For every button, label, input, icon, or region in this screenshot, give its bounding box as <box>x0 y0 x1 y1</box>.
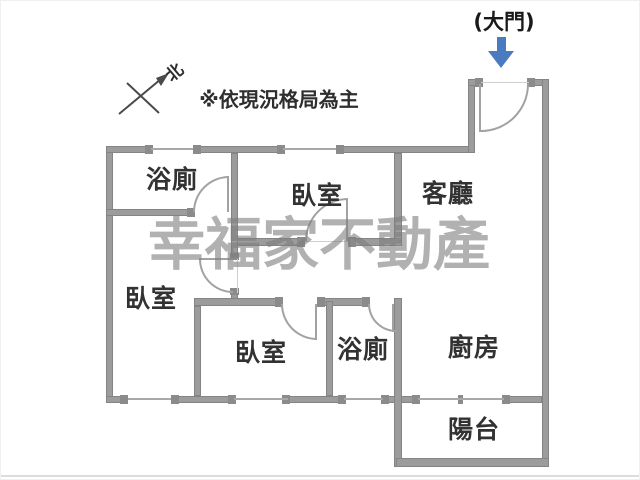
room-label: 臥室 <box>125 279 177 315</box>
wall-segment <box>396 458 549 467</box>
door-leaf <box>392 304 394 332</box>
window-line <box>344 398 383 400</box>
room-label: 廚房 <box>448 328 500 364</box>
wall-segment <box>193 146 283 153</box>
wall-segment <box>326 301 333 396</box>
wall-cap <box>120 395 128 404</box>
watermark-text: 幸福家不動產 <box>148 199 490 281</box>
window-line <box>151 148 193 150</box>
door-swing-arc <box>481 84 529 132</box>
wall-segment <box>336 146 475 153</box>
wall-segment <box>194 306 201 396</box>
floor-plan-canvas: (大門) 北 ※依現況格局為主 浴廁臥室客廳臥室臥室浴廁廚房陽台 幸福家不動產 <box>0 0 640 480</box>
entrance-arrow-head-icon <box>488 51 514 68</box>
wall-segment <box>194 298 281 306</box>
window-line <box>128 398 171 400</box>
disclaimer-text: ※依現況格局為主 <box>199 84 358 113</box>
wall-segment <box>468 79 475 153</box>
wall-segment <box>288 396 344 403</box>
wall-cap <box>171 395 179 404</box>
window-line <box>234 398 288 400</box>
room-label: 浴廁 <box>337 330 389 366</box>
door-leaf <box>315 304 317 340</box>
wall-cap <box>193 145 201 154</box>
wall-segment <box>106 146 113 403</box>
north-label: 北 <box>162 60 188 86</box>
image-bottom-edge <box>1 475 640 477</box>
entrance-label: (大門) <box>473 6 534 36</box>
opening-threshold <box>481 82 529 83</box>
wall-segment <box>171 396 234 403</box>
room-label: 陽台 <box>448 410 500 446</box>
window-line <box>418 398 504 400</box>
wall-cap <box>336 145 344 154</box>
room-label: 臥室 <box>235 333 287 369</box>
wall-segment <box>542 79 549 467</box>
wall-cap <box>317 297 325 307</box>
window-line <box>283 148 336 150</box>
door-leaf <box>479 84 481 132</box>
north-arrow-icon: 北 <box>101 56 196 120</box>
entrance-arrow-icon <box>497 37 506 52</box>
room-label: 浴廁 <box>146 160 198 196</box>
